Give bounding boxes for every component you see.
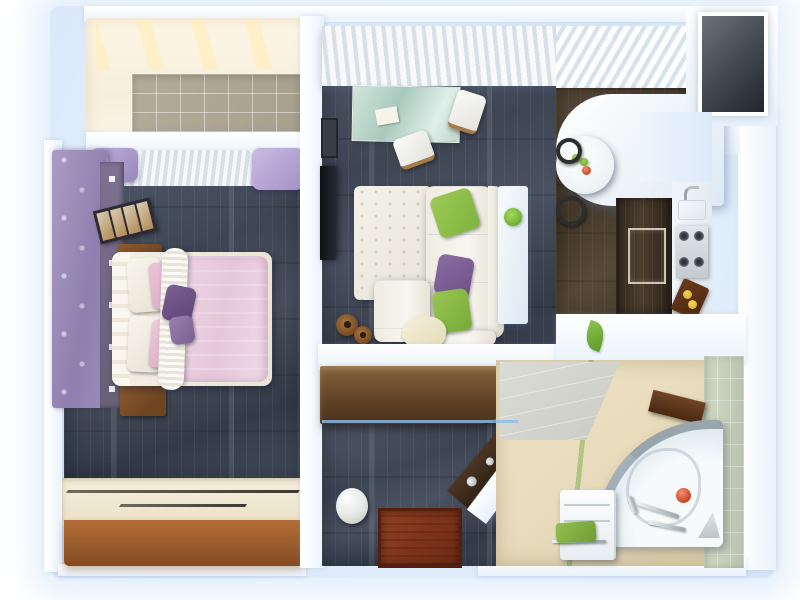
pouf-small <box>354 326 372 344</box>
sink-basin <box>678 200 706 220</box>
lemon-1 <box>683 290 692 299</box>
green-apple-2 <box>580 158 588 166</box>
bar-stool-lower <box>556 196 586 226</box>
red-sponge-ball <box>676 488 691 503</box>
sliding-wardrobe-front <box>64 520 304 566</box>
potted-plant <box>504 208 522 226</box>
lemon-2 <box>688 300 697 309</box>
bar-stool-upper <box>556 138 582 164</box>
glass-console <box>498 186 528 324</box>
wall-tv <box>320 166 336 260</box>
glass-desk <box>352 85 461 143</box>
oven-door <box>628 228 666 284</box>
hallway-threshold-line <box>322 420 518 423</box>
wall-bedroom-living <box>300 16 324 568</box>
wall-picture <box>321 118 338 158</box>
balcony-tile-floor <box>132 74 300 134</box>
bedroom-drape-right <box>252 148 304 190</box>
balcony-light-beams <box>96 20 300 70</box>
red-apple <box>582 166 591 175</box>
cooktop <box>676 226 708 278</box>
bed-cushion-purple-light <box>168 314 196 345</box>
sliding-wardrobe-top <box>62 478 304 522</box>
entry-doormat <box>378 508 462 568</box>
ventilation-shaft <box>698 12 768 116</box>
kitchen-side-wall <box>640 112 712 182</box>
umbrella-stand-vase <box>336 488 368 524</box>
green-towel <box>555 521 596 544</box>
hallway-closet <box>320 366 522 424</box>
floor-plan-render <box>0 0 800 600</box>
